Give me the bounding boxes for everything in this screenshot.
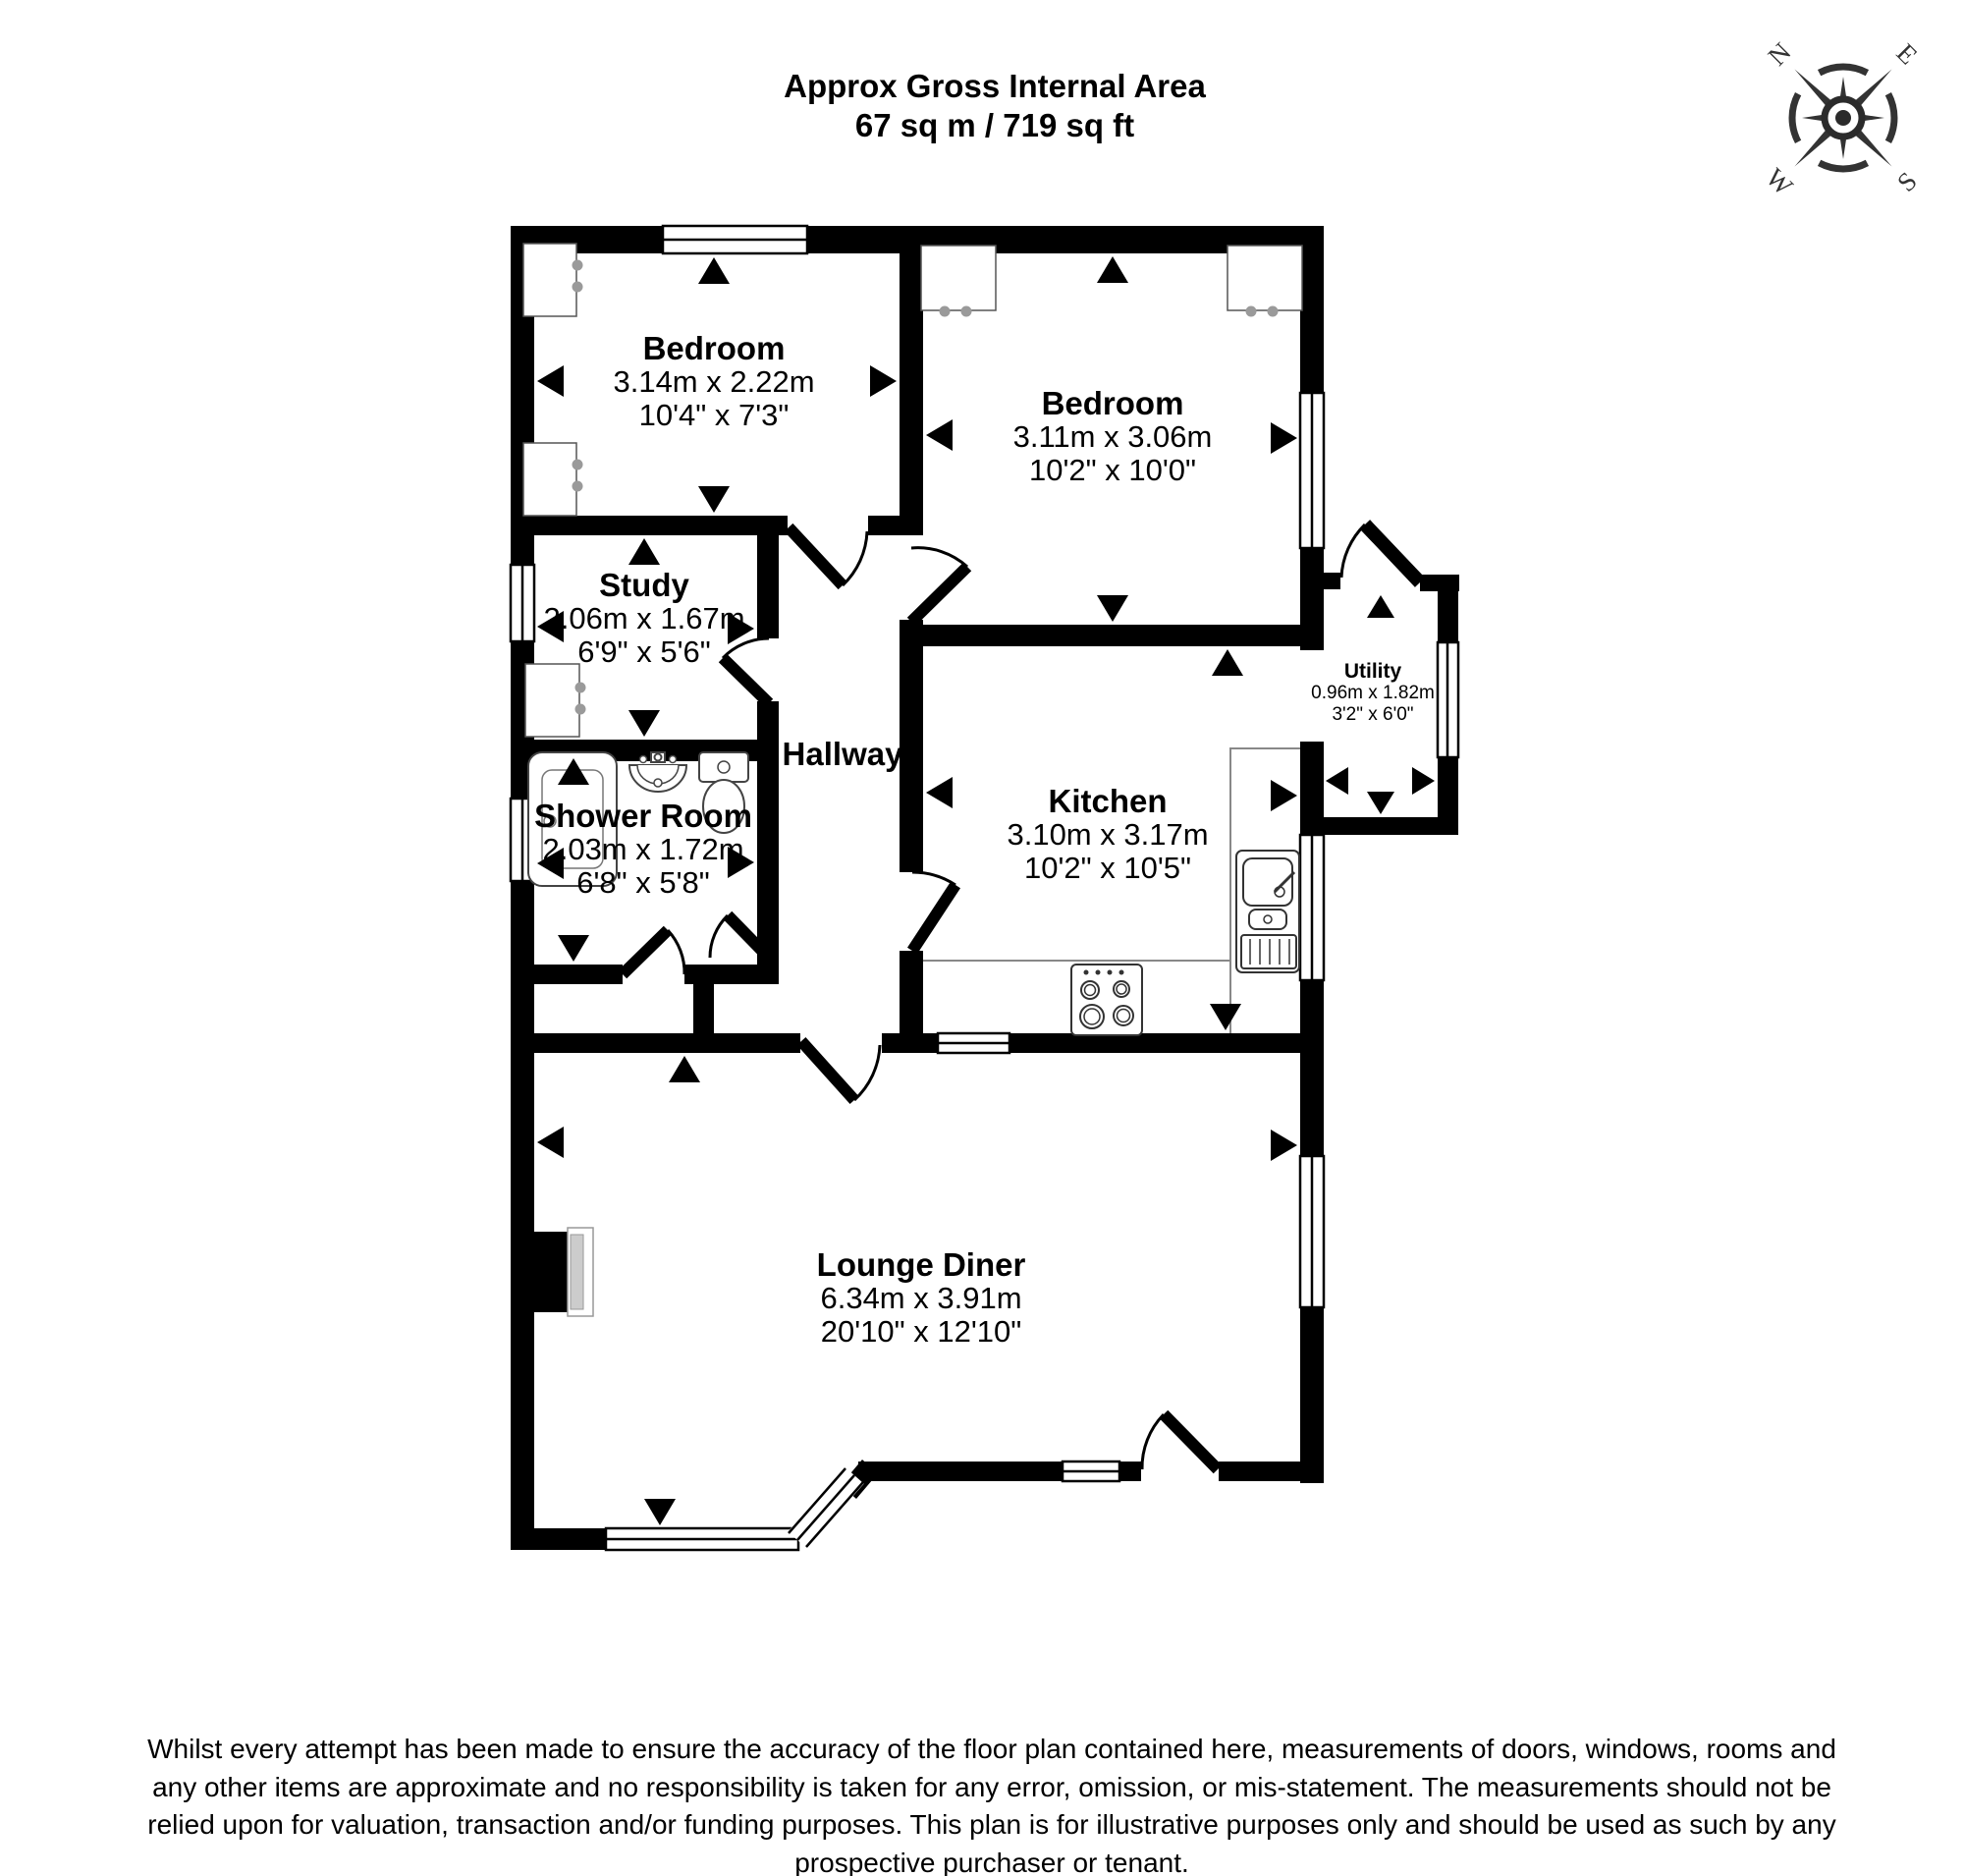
window-bedroom1-top	[663, 226, 807, 253]
compass-icon: N E S W	[1760, 36, 1923, 200]
room-label-hallway: Hallway	[783, 738, 903, 771]
window-bay-right	[1063, 1462, 1119, 1481]
arrow-left-icon	[926, 419, 953, 451]
room-label-study: Study 2.06m x 1.67m 6'9" x 5'6"	[543, 569, 744, 669]
room-dims-metric: 3.10m x 3.17m	[1007, 818, 1208, 852]
wardrobe	[523, 443, 583, 516]
room-dims-imperial: 20'10" x 12'10"	[817, 1315, 1026, 1349]
kitchen-hob	[1071, 965, 1142, 1035]
arrow-down-icon	[1210, 1004, 1241, 1030]
disclaimer-line: prospective purchaser or tenant.	[147, 1845, 1836, 1876]
arrow-right-icon	[1271, 780, 1297, 811]
room-dims-imperial: 6'8" x 5'8"	[534, 866, 752, 900]
arrow-right-icon	[1271, 422, 1297, 454]
room-label-bedroom2: Bedroom 3.11m x 3.06m 10'2" x 10'0"	[1013, 387, 1213, 487]
arrow-up-icon	[669, 1056, 700, 1082]
room-name: Shower Room	[534, 800, 752, 833]
title-area-value: 67 sq m / 719 sq ft	[784, 106, 1206, 145]
window-kitchen-right	[1300, 835, 1324, 980]
kitchen-sink	[1236, 851, 1299, 972]
door-kitchen	[912, 872, 955, 951]
compass-e-label: E	[1891, 38, 1924, 71]
room-label-utility: Utility 0.96m x 1.82m 3'2" x 6'0"	[1311, 661, 1435, 726]
door-lounge	[801, 1041, 880, 1100]
room-label-shower: Shower Room 2.03m x 1.72m 6'8" x 5'8"	[534, 800, 752, 900]
arrow-up-icon	[1097, 256, 1128, 283]
room-dims-metric: 2.03m x 1.72m	[534, 833, 752, 866]
door-bedroom1	[789, 527, 867, 585]
room-name: Hallway	[783, 738, 903, 771]
window-study-left	[511, 565, 534, 641]
room-dims-imperial: 6'9" x 5'6"	[543, 635, 744, 669]
door-shower	[623, 930, 684, 974]
window-kitchen-lounge	[938, 1033, 1009, 1053]
window-bay-bottom	[606, 1528, 798, 1550]
room-dims-imperial: 10'2" x 10'5"	[1007, 852, 1208, 885]
arrow-up-icon	[698, 257, 730, 284]
room-dims-metric: 3.11m x 3.06m	[1013, 420, 1213, 454]
floorplan-drawing: N E S W	[0, 0, 1964, 1876]
wardrobe	[523, 244, 583, 316]
room-name: Kitchen	[1007, 785, 1208, 818]
arrow-down-icon	[1367, 792, 1394, 814]
arrow-left-icon	[537, 1127, 564, 1158]
room-dims-imperial: 3'2" x 6'0"	[1311, 704, 1435, 726]
room-name: Bedroom	[1013, 387, 1213, 420]
arrow-left-icon	[537, 365, 564, 397]
compass-n-label: N	[1762, 36, 1796, 71]
window-bay-diagonal	[789, 1468, 863, 1547]
room-dims-imperial: 10'2" x 10'0"	[1013, 454, 1213, 487]
arrow-right-icon	[870, 365, 897, 397]
arrow-down-icon	[644, 1499, 676, 1525]
arrow-left-icon	[1326, 767, 1348, 795]
title-area-label: Approx Gross Internal Area	[784, 67, 1206, 106]
cupboard	[525, 664, 586, 737]
wardrobe	[1227, 246, 1302, 317]
room-dims-metric: 0.96m x 1.82m	[1311, 683, 1435, 704]
room-name: Lounge Diner	[817, 1248, 1026, 1282]
wardrobe	[921, 246, 996, 317]
room-label-kitchen: Kitchen 3.10m x 3.17m 10'2" x 10'5"	[1007, 785, 1208, 885]
window-bedroom2-right	[1300, 393, 1324, 548]
disclaimer-line: relied upon for valuation, transaction a…	[147, 1806, 1836, 1845]
room-name: Study	[543, 569, 744, 602]
room-label-lounge: Lounge Diner 6.34m x 3.91m 20'10" x 12'1…	[817, 1248, 1026, 1349]
fireplace	[513, 1228, 593, 1316]
door-lounge-patio	[1142, 1414, 1218, 1469]
arrow-down-icon	[1097, 595, 1128, 622]
arrow-right-icon	[1412, 767, 1435, 795]
door-bedroom2	[911, 548, 967, 622]
arrow-down-icon	[698, 486, 730, 513]
disclaimer-text: Whilst every attempt has been made to en…	[147, 1731, 1836, 1876]
room-dims-metric: 6.34m x 3.91m	[817, 1282, 1026, 1315]
disclaimer-line: Whilst every attempt has been made to en…	[147, 1731, 1836, 1769]
compass-s-label: S	[1891, 166, 1923, 197]
arrow-up-icon	[1367, 595, 1394, 618]
floorplan-page: N E S W Approx Gross Internal Area 67 sq…	[0, 0, 1964, 1876]
door-utility-external	[1341, 524, 1420, 582]
room-dims-imperial: 10'4" x 7'3"	[613, 399, 814, 432]
room-label-bedroom1: Bedroom 3.14m x 2.22m 10'4" x 7'3"	[613, 332, 814, 432]
room-dims-metric: 2.06m x 1.67m	[543, 602, 744, 635]
arrow-up-icon	[1212, 649, 1243, 676]
arrow-up-icon	[628, 538, 660, 565]
arrow-left-icon	[926, 777, 953, 808]
window-utility-right	[1438, 642, 1458, 757]
disclaimer-line: any other items are approximate and no r…	[147, 1769, 1836, 1807]
compass-w-label: W	[1760, 162, 1799, 201]
room-name: Bedroom	[613, 332, 814, 365]
room-name: Utility	[1311, 661, 1435, 683]
room-dims-metric: 3.14m x 2.22m	[613, 365, 814, 399]
window-lounge-right	[1300, 1156, 1324, 1307]
arrow-right-icon	[1271, 1130, 1297, 1161]
arrow-down-icon	[628, 710, 660, 737]
arrow-down-icon	[558, 935, 589, 962]
plan-title: Approx Gross Internal Area 67 sq m / 719…	[784, 67, 1206, 145]
